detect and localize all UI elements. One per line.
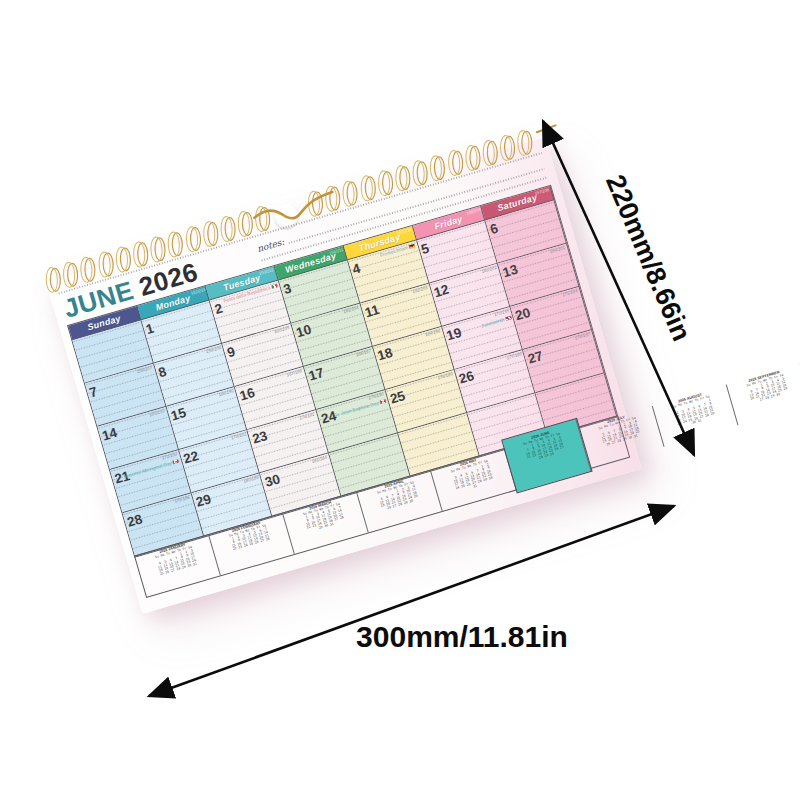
cell-date: 9 <box>226 345 237 361</box>
binding-coil-icon <box>172 232 184 256</box>
day-header-daynum: 157/208 <box>534 187 549 195</box>
binding-coil-icon <box>469 146 481 170</box>
cell-date: 2 <box>213 302 224 318</box>
binding-coil-icon <box>49 268 61 292</box>
binding-wire-tip-icon <box>536 124 557 134</box>
mini-calendar: 2026 AUGUSTSu Mo Tu We Th Fr Sa 1 2 3 4 … <box>653 385 739 447</box>
binding-coil-icon <box>84 257 96 281</box>
binding-coil-icon <box>486 141 498 165</box>
binding-coil-icon <box>416 161 428 185</box>
binding-coil-icon <box>67 262 79 286</box>
binding-coil-icon <box>137 242 149 266</box>
cell-date: 18 <box>376 346 394 364</box>
day-header-daynum: 156/209 <box>466 207 481 215</box>
holiday-name: National Aboriginal Day <box>123 460 172 479</box>
cell-date: 1 <box>144 322 155 338</box>
holiday-name: Juneteenth <box>480 317 504 328</box>
height-dimension-label: 220mm/8.66in <box>601 171 695 345</box>
binding-coil-icon <box>119 247 131 271</box>
cell-date: 8 <box>157 365 168 381</box>
binding-coil-icon <box>346 181 358 205</box>
product-image: JUNE2026 notes: Sunday7158/20714165/2002… <box>0 0 800 800</box>
cell-date: 16 <box>238 386 256 404</box>
day-header-daynum: 155/210 <box>397 227 412 235</box>
binding-coil-icon <box>521 130 533 154</box>
cell-date: 26 <box>457 369 475 387</box>
cell-date: 25 <box>389 389 407 407</box>
cell-date: 28 <box>126 512 144 530</box>
cell-date: 23 <box>251 429 269 447</box>
binding-coil-icon <box>451 151 463 175</box>
cell-date: 29 <box>195 492 213 510</box>
binding-coil-icon <box>364 176 376 200</box>
flag-it-icon <box>271 284 277 289</box>
cell-date: 19 <box>445 326 463 344</box>
cell-date: 15 <box>169 406 187 424</box>
cell-date: 12 <box>432 283 450 301</box>
binding-coil-icon <box>434 156 446 180</box>
flag-ca-icon <box>380 399 386 404</box>
cell-date: 10 <box>295 323 313 341</box>
holiday-name: St. Jean Baptiste Day <box>334 400 380 417</box>
cell-date: 22 <box>182 449 200 467</box>
cell-holiday: Juneteenth <box>480 315 511 328</box>
day-header-daynum: 153/212 <box>259 267 274 275</box>
cell-date: 30 <box>263 472 281 490</box>
flag-us-icon <box>505 315 511 320</box>
binding-coil-icon <box>102 252 114 276</box>
flag-de-icon <box>409 244 415 249</box>
flag-ca-icon <box>173 459 179 464</box>
mini-calendar-body: 2026 AUGUSTSu Mo Tu We Th Fr Sa 1 2 3 4 … <box>670 390 717 429</box>
binding-coil-icon <box>224 217 236 241</box>
cell-date: 11 <box>363 303 381 321</box>
binding-coil-icon <box>399 166 411 190</box>
day-header-daynum: 152/213 <box>190 287 205 295</box>
cell-date: 17 <box>307 366 325 384</box>
binding-coil-icon <box>207 222 219 246</box>
mini-calendar: 2026 SEPTEMBERSu Mo Tu We Th Fr Sa 1 2 3… <box>727 363 800 425</box>
width-dimension-label: 300mm/11.81in <box>356 622 568 652</box>
cell-date: 27 <box>526 349 544 367</box>
cell-date: 6 <box>489 222 500 238</box>
cell-date: 20 <box>514 306 532 324</box>
cell-date: 14 <box>101 426 119 444</box>
cell-date: 13 <box>501 263 519 281</box>
mini-calendar-body: 2026 SEPTEMBERSu Mo Tu We Th Fr Sa 1 2 3… <box>744 368 790 404</box>
cell-date: 4 <box>351 262 362 278</box>
cell-date: 5 <box>420 242 431 258</box>
cell-date: 7 <box>88 385 99 401</box>
cell-date: 3 <box>282 282 293 298</box>
binding-coil-icon <box>504 136 516 160</box>
mini-calendar-body: 2026 JUNESu Mo Tu We Th Fr Sa 1 2 3 4 5 … <box>520 427 566 463</box>
binding-coil-icon <box>154 237 166 261</box>
binding-coil-icon <box>381 171 393 195</box>
binding-coil-icon <box>189 227 201 251</box>
notes-label: notes: <box>256 238 285 254</box>
calendar-page: JUNE2026 notes: Sunday7158/20714165/2002… <box>46 137 642 613</box>
